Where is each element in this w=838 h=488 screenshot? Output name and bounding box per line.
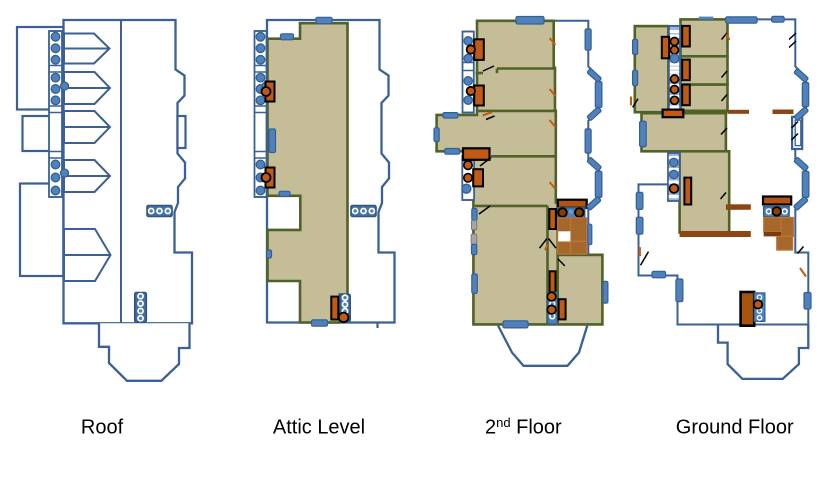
- svg-text:Roof: Roof: [81, 417, 124, 439]
- svg-text:Attic Level: Attic Level: [273, 417, 365, 439]
- svg-text:2nd Floor: 2nd Floor: [485, 415, 562, 439]
- svg-text:Ground Floor: Ground Floor: [676, 417, 794, 439]
